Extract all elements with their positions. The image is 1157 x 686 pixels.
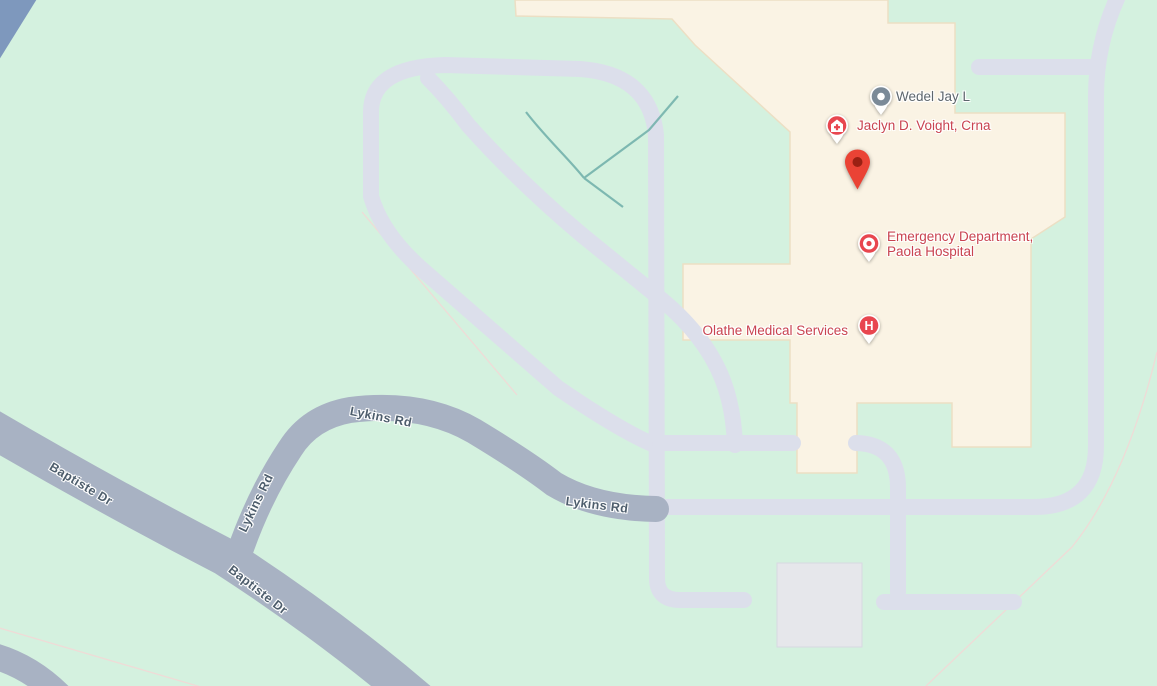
hospital-h-icon[interactable]: H (856, 313, 882, 345)
poi-label-line2: Paola Hospital (887, 245, 1033, 260)
building-footprint (777, 563, 862, 647)
emergency-ring-icon[interactable] (856, 231, 882, 263)
poi-label-wedel-jay-l[interactable]: Wedel Jay L (896, 90, 970, 105)
place-dot-icon[interactable] (868, 84, 894, 116)
poi-label-emergency-department[interactable]: Emergency Department, Paola Hospital (887, 230, 1033, 259)
red-location-pin-icon[interactable] (843, 148, 872, 191)
poi-label-jaclyn-d-voight[interactable]: Jaclyn D. Voight, Crna (857, 119, 991, 134)
map-base-layer (0, 0, 1157, 686)
poi-label-line1: Emergency Department, (887, 230, 1033, 245)
medical-office-icon[interactable] (824, 113, 850, 145)
hospital-h-letter: H (864, 319, 873, 333)
poi-label-olathe-medical-services[interactable]: Olathe Medical Services (702, 324, 848, 339)
map-canvas[interactable]: Lykins Rd Lykins Rd Lykins Rd Baptiste D… (0, 0, 1157, 686)
